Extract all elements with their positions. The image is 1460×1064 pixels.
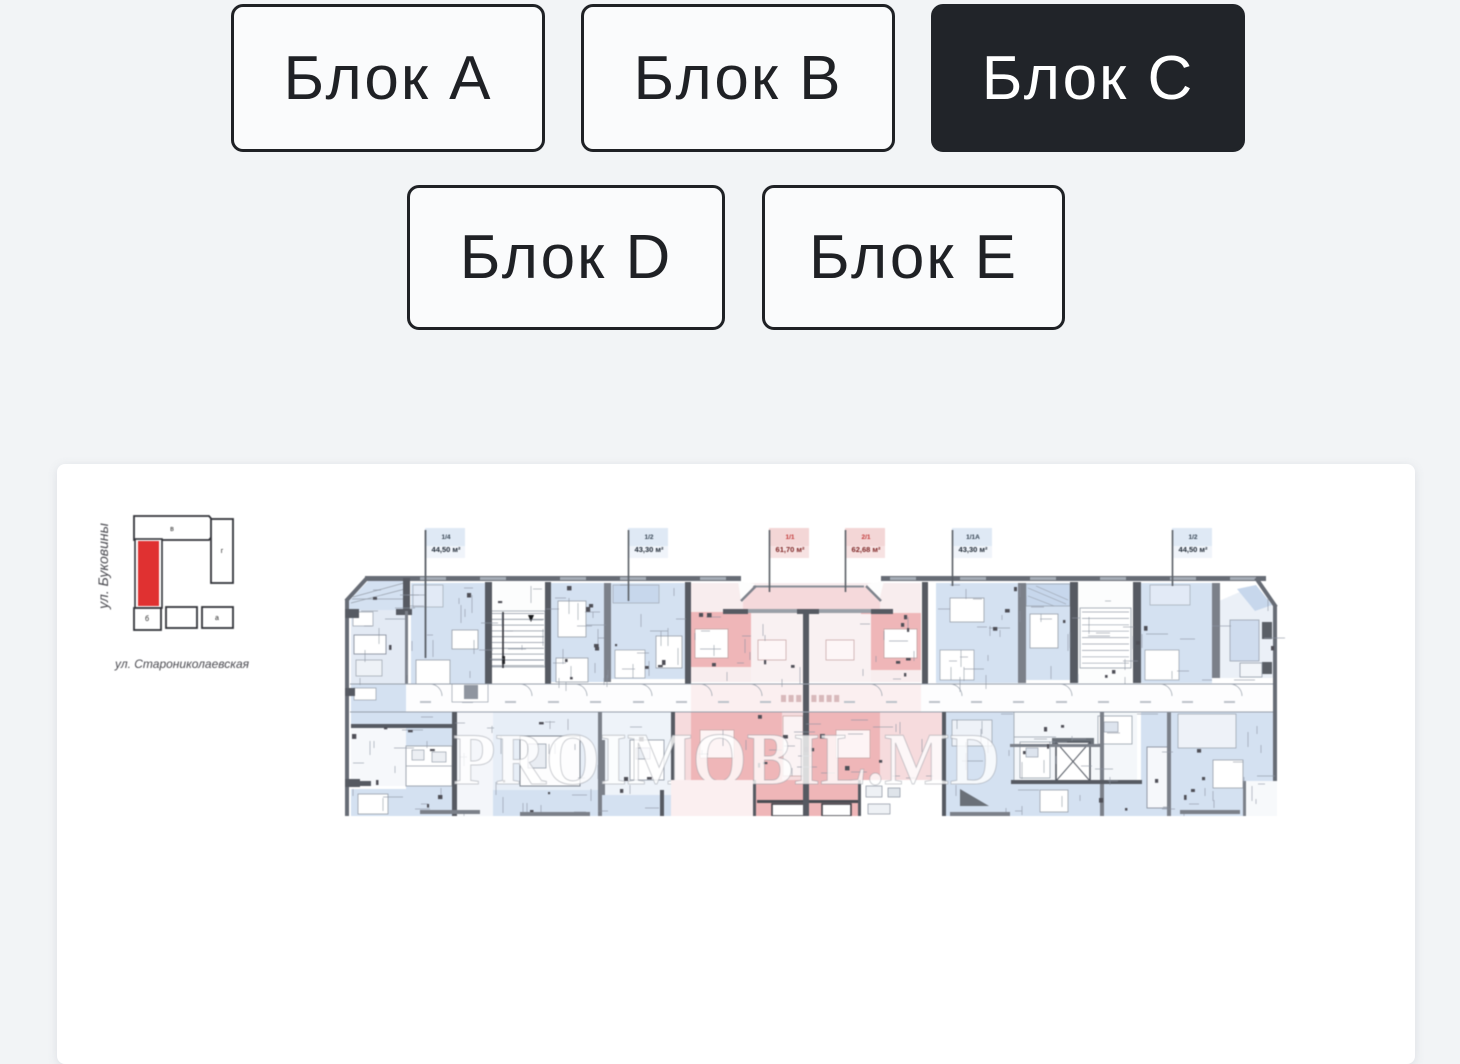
- svg-text:62,68 м²: 62,68 м²: [852, 545, 881, 554]
- svg-text:1/1А: 1/1А: [966, 534, 980, 541]
- svg-text:ул. Буковины: ул. Буковины: [95, 522, 111, 610]
- svg-text:44,50 м²: 44,50 м²: [432, 545, 461, 554]
- svg-text:2/1: 2/1: [861, 534, 870, 541]
- svg-text:1/2: 1/2: [644, 534, 653, 541]
- svg-text:б: б: [145, 615, 149, 623]
- svg-text:1/1: 1/1: [785, 534, 794, 541]
- svg-text:ул. Старониколаевская: ул. Старониколаевская: [114, 657, 250, 671]
- svg-text:61,70 м²: 61,70 м²: [776, 545, 805, 554]
- svg-text:43,30 м²: 43,30 м²: [635, 545, 664, 554]
- svg-text:а: а: [215, 615, 219, 622]
- svg-text:г: г: [221, 548, 224, 555]
- svg-text:1/4: 1/4: [441, 534, 450, 541]
- svg-text:44,50 м²: 44,50 м²: [1179, 545, 1208, 554]
- svg-text:1/2: 1/2: [1188, 534, 1197, 541]
- svg-text:43,30 м²: 43,30 м²: [959, 545, 988, 554]
- svg-text:в: в: [170, 526, 174, 533]
